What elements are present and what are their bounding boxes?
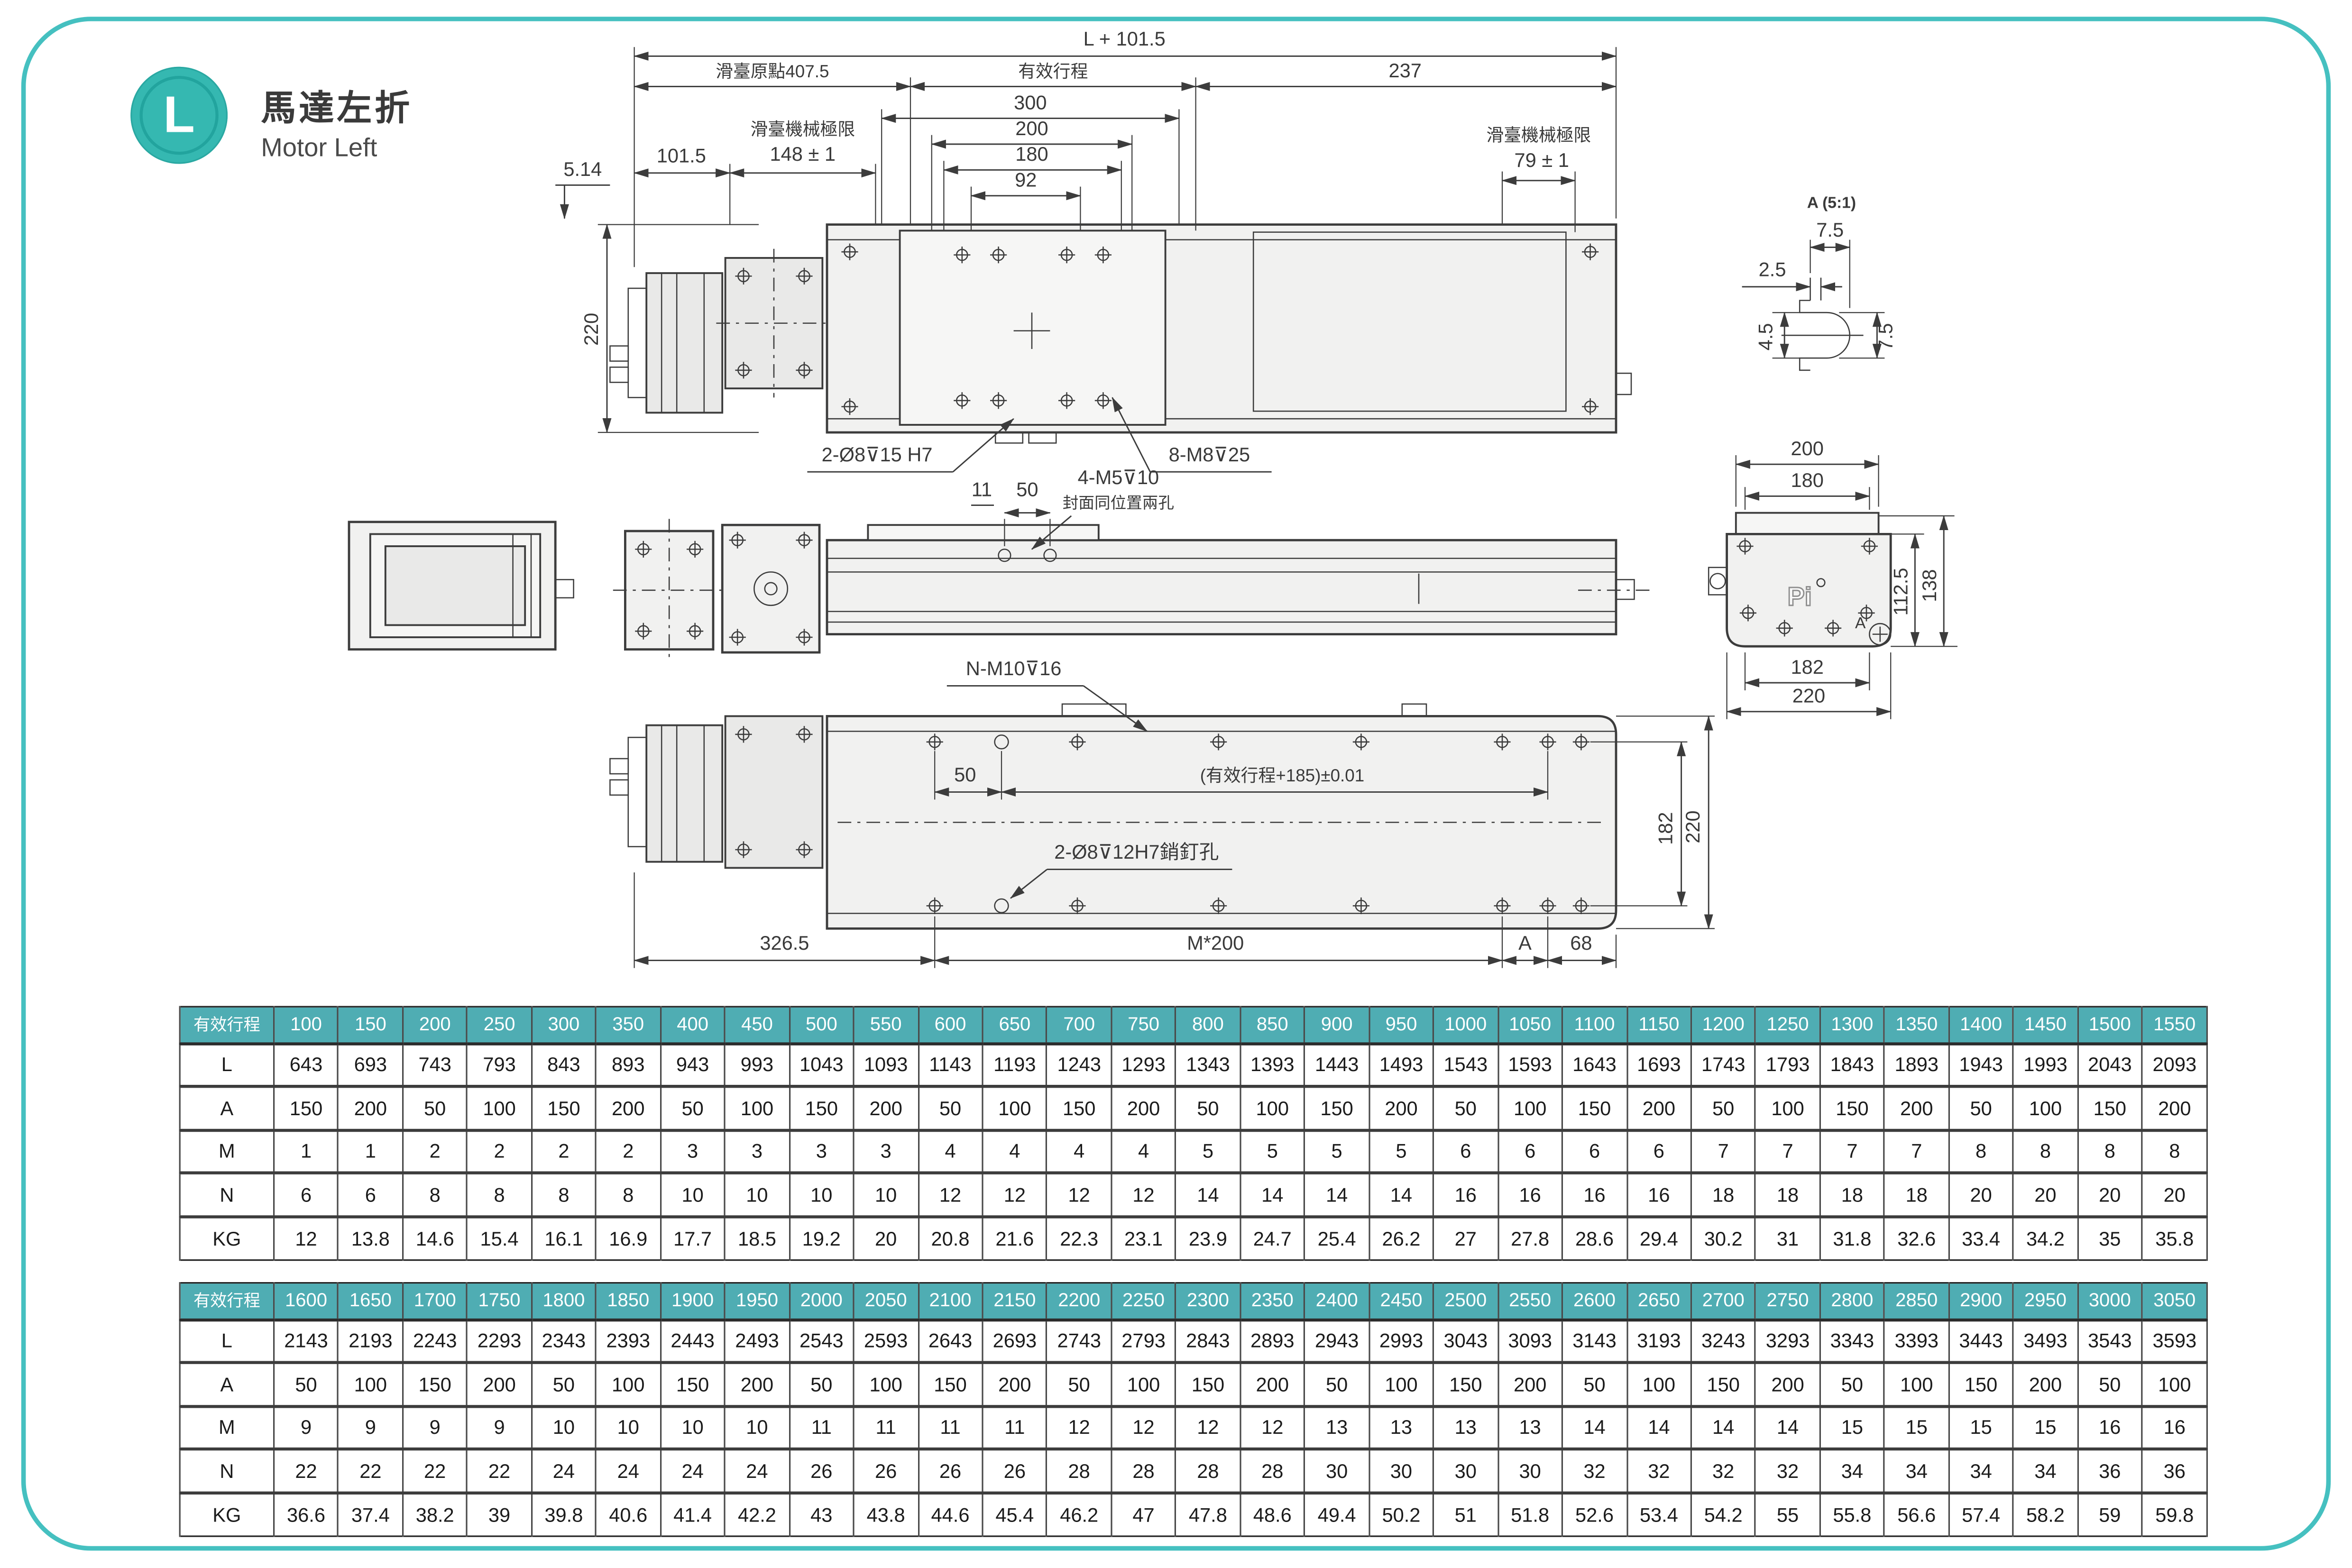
spec-value-cell: 23.1 — [1112, 1217, 1176, 1260]
stroke-header-cell: 2300 — [1176, 1283, 1240, 1320]
spec-value-cell: 20 — [1949, 1174, 2013, 1217]
spec-value-cell: 15 — [1884, 1406, 1949, 1449]
stroke-header-cell: 950 — [1369, 1007, 1433, 1043]
stroke-header-cell: 300 — [532, 1007, 596, 1043]
spec-value-cell: 2143 — [274, 1319, 339, 1363]
spec-value-cell: 2693 — [983, 1319, 1047, 1363]
spec-value-cell: 25.4 — [1305, 1217, 1369, 1260]
callout-m8-holes: 8-M8⊽25 — [1169, 443, 1250, 466]
spec-value-cell: 993 — [725, 1043, 790, 1087]
spec-value-cell: 10 — [789, 1174, 854, 1217]
dim-182-end: 182 — [1791, 656, 1823, 678]
stroke-header-cell: 3050 — [2142, 1283, 2207, 1320]
spec-value-cell: 13.8 — [338, 1217, 403, 1260]
spec-value-cell: 18 — [1820, 1174, 1884, 1217]
spec-value-cell: 1343 — [1176, 1043, 1240, 1087]
spec-value-cell: 13 — [1305, 1406, 1369, 1449]
spec-value-cell: 18 — [1691, 1174, 1755, 1217]
dim-effective-stroke: 有效行程 — [1018, 62, 1088, 81]
spec-value-cell: 8 — [596, 1174, 661, 1217]
spec-value-cell: 100 — [1884, 1363, 1949, 1406]
spec-value-cell: 45.4 — [983, 1493, 1047, 1536]
dim-138: 138 — [1918, 569, 1940, 602]
spec-value-cell: 55.8 — [1820, 1493, 1884, 1536]
spec-value-cell: 14 — [1176, 1174, 1240, 1217]
spec-value-cell: 150 — [918, 1363, 983, 1406]
spec-value-cell: 31 — [1755, 1217, 1820, 1260]
spec-value-cell: 43.8 — [854, 1493, 918, 1536]
spec-value-cell: 55 — [1755, 1493, 1820, 1536]
stroke-header-cell: 2750 — [1755, 1283, 1820, 1320]
spec-value-cell: 1643 — [1562, 1043, 1627, 1087]
spec-value-cell: 150 — [1691, 1363, 1755, 1406]
spec-value-cell: 20 — [2142, 1174, 2207, 1217]
spec-value-cell: 24.7 — [1240, 1217, 1305, 1260]
spec-value-cell: 4 — [918, 1130, 983, 1174]
spec-value-cell: 14.6 — [403, 1217, 467, 1260]
spec-value-cell: 1 — [338, 1130, 403, 1174]
spec-value-cell: 11 — [983, 1406, 1047, 1449]
callout-pin-hole-top: 2-Ø8⊽15 H7 — [822, 443, 933, 466]
spec-value-cell: 30.2 — [1691, 1217, 1755, 1260]
dim-220-bottom: 220 — [1681, 810, 1704, 843]
spec-value-cell: 3593 — [2142, 1319, 2207, 1363]
spec-value-cell: 200 — [1240, 1363, 1305, 1406]
spec-value-cell: 200 — [338, 1087, 403, 1130]
spec-value-cell: 16.1 — [532, 1217, 596, 1260]
spec-value-cell: 24 — [661, 1449, 725, 1493]
spec-value-cell: 24 — [596, 1449, 661, 1493]
spec-value-cell: 7 — [1820, 1130, 1884, 1174]
spec-value-cell: 3 — [725, 1130, 790, 1174]
spec-value-cell: 200 — [2142, 1087, 2207, 1130]
spec-value-cell: 4 — [1112, 1130, 1176, 1174]
spec-value-cell: 1093 — [854, 1043, 918, 1087]
callout-dowel-pin-holes: 2-Ø8⊽12H7銷釘孔 — [1054, 841, 1219, 863]
spec-value-cell: 1243 — [1047, 1043, 1112, 1087]
spec-value-cell: 32 — [1562, 1449, 1627, 1493]
spec-value-cell: 59.8 — [2142, 1493, 2207, 1536]
spec-value-cell: 10 — [661, 1174, 725, 1217]
spec-value-cell: 57.4 — [1949, 1493, 2013, 1536]
spec-value-cell: 743 — [403, 1043, 467, 1087]
spec-value-cell: 6 — [274, 1174, 339, 1217]
dim-326-5: 326.5 — [760, 932, 809, 954]
spec-row-label: KG — [180, 1493, 274, 1536]
spec-value-cell: 4 — [1047, 1130, 1112, 1174]
spec-value-cell: 20.8 — [918, 1217, 983, 1260]
spec-value-cell: 26 — [918, 1449, 983, 1493]
stroke-header-cell: 1850 — [596, 1283, 661, 1320]
stroke-header-cell: 200 — [403, 1007, 467, 1043]
spec-row-kg: KG36.637.438.23939.840.641.442.24343.844… — [180, 1493, 2207, 1536]
spec-value-cell: 22 — [403, 1449, 467, 1493]
dim-50-bottom: 50 — [954, 763, 976, 786]
spec-value-cell: 30 — [1433, 1449, 1498, 1493]
spec-value-cell: 9 — [338, 1406, 403, 1449]
spec-value-cell: 14 — [1369, 1174, 1433, 1217]
spec-value-cell: 200 — [596, 1087, 661, 1130]
spec-value-cell: 13 — [1369, 1406, 1433, 1449]
spec-value-cell: 200 — [2013, 1363, 2078, 1406]
spec-value-cell: 1593 — [1498, 1043, 1562, 1087]
stroke-header-cell: 2700 — [1691, 1283, 1755, 1320]
spec-value-cell: 1743 — [1691, 1043, 1755, 1087]
spec-value-cell: 2743 — [1047, 1319, 1112, 1363]
spec-value-cell: 1893 — [1884, 1043, 1949, 1087]
spec-value-cell: 2993 — [1369, 1319, 1433, 1363]
spec-value-cell: 2493 — [725, 1319, 790, 1363]
stroke-header-label: 有效行程 — [180, 1283, 274, 1320]
spec-value-cell: 14 — [1626, 1406, 1691, 1449]
spec-value-cell: 32 — [1691, 1449, 1755, 1493]
spec-value-cell: 200 — [1884, 1087, 1949, 1130]
spec-value-cell: 50 — [1433, 1087, 1498, 1130]
spec-value-cell: 150 — [1949, 1363, 2013, 1406]
spec-value-cell: 100 — [1369, 1363, 1433, 1406]
spec-value-cell: 13 — [1433, 1406, 1498, 1449]
spec-value-cell: 3193 — [1626, 1319, 1691, 1363]
spec-value-cell: 50.2 — [1369, 1493, 1433, 1536]
stroke-header-cell: 2400 — [1305, 1283, 1369, 1320]
spec-value-cell: 51 — [1433, 1493, 1498, 1536]
spec-value-cell: 2 — [467, 1130, 532, 1174]
dim-237: 237 — [1388, 59, 1421, 82]
spec-value-cell: 1393 — [1240, 1043, 1305, 1087]
spec-value-cell: 2043 — [2077, 1043, 2142, 1087]
spec-value-cell: 150 — [661, 1363, 725, 1406]
stroke-header-cell: 400 — [661, 1007, 725, 1043]
spec-value-cell: 6 — [1626, 1130, 1691, 1174]
spec-value-cell: 14 — [1305, 1174, 1369, 1217]
technical-drawing: L + 101.5 滑臺原點407.5 有效行程 237 300 200 180… — [0, 0, 2352, 1001]
spec-value-cell: 38.2 — [403, 1493, 467, 1536]
spec-row-label: M — [180, 1406, 274, 1449]
spec-row-label: A — [180, 1087, 274, 1130]
spec-value-cell: 32.6 — [1884, 1217, 1949, 1260]
spec-value-cell: 3393 — [1884, 1319, 1949, 1363]
spec-value-cell: 18 — [1884, 1174, 1949, 1217]
stroke-header-cell: 2000 — [789, 1283, 854, 1320]
spec-value-cell: 2643 — [918, 1319, 983, 1363]
spec-value-cell: 6 — [1562, 1130, 1627, 1174]
spec-value-cell: 150 — [789, 1087, 854, 1130]
spec-value-cell: 2243 — [403, 1319, 467, 1363]
bottom-view-linework — [610, 704, 1616, 929]
spec-value-cell: 150 — [532, 1087, 596, 1130]
spec-value-cell: 200 — [1498, 1363, 1562, 1406]
detail-dim-4-5: 4.5 — [1755, 323, 1777, 350]
spec-value-cell: 100 — [2142, 1363, 2207, 1406]
spec-value-cell: 1843 — [1820, 1043, 1884, 1087]
spec-value-cell: 150 — [1562, 1087, 1627, 1130]
spec-value-cell: 693 — [338, 1043, 403, 1087]
spec-value-cell: 10 — [661, 1406, 725, 1449]
stroke-header-cell: 150 — [338, 1007, 403, 1043]
stroke-header-cell: 2050 — [854, 1283, 918, 1320]
stroke-header-cell: 2850 — [1884, 1283, 1949, 1320]
stroke-header-cell: 1150 — [1626, 1007, 1691, 1043]
stroke-header-cell: 2200 — [1047, 1283, 1112, 1320]
spec-value-cell: 5 — [1176, 1130, 1240, 1174]
spec-value-cell: 11 — [854, 1406, 918, 1449]
spec-row-n: N668888101010101212121214141414161616161… — [180, 1174, 2207, 1217]
spec-row-m: M112222333344445555666677778888 — [180, 1130, 2207, 1174]
spec-value-cell: 1043 — [789, 1043, 854, 1087]
dim-68: 68 — [1570, 932, 1592, 954]
spec-value-cell: 100 — [1755, 1087, 1820, 1130]
spec-value-cell: 12 — [983, 1174, 1047, 1217]
spec-value-cell: 11 — [918, 1406, 983, 1449]
stroke-header-cell: 2950 — [2013, 1283, 2078, 1320]
spec-row-m: M999910101010111111111212121213131313141… — [180, 1406, 2207, 1449]
spec-value-cell: 27.8 — [1498, 1217, 1562, 1260]
spec-value-cell: 17.7 — [661, 1217, 725, 1260]
spec-value-cell: 34 — [1820, 1449, 1884, 1493]
spec-value-cell: 28 — [1176, 1449, 1240, 1493]
spec-value-cell: 4 — [983, 1130, 1047, 1174]
spec-value-cell: 1693 — [1626, 1043, 1691, 1087]
spec-value-cell: 3 — [661, 1130, 725, 1174]
spec-value-cell: 2843 — [1176, 1319, 1240, 1363]
spec-value-cell: 44.6 — [918, 1493, 983, 1536]
label-slide-mech-limit-right: 滑臺機械極限 — [1486, 126, 1591, 145]
label-slide-mech-limit-left: 滑臺機械極限 — [750, 119, 855, 139]
spec-value-cell: 50 — [789, 1363, 854, 1406]
spec-value-cell: 22.3 — [1047, 1217, 1112, 1260]
spec-value-cell: 2343 — [532, 1319, 596, 1363]
stroke-header-cell: 2600 — [1562, 1283, 1627, 1320]
stroke-header-cell: 1750 — [467, 1283, 532, 1320]
stroke-header-cell: 550 — [854, 1007, 918, 1043]
stroke-header-cell: 1800 — [532, 1283, 596, 1320]
stroke-header-cell: 250 — [467, 1007, 532, 1043]
end-view-linework: Pi A — [1709, 513, 1891, 647]
stroke-header-cell: 850 — [1240, 1007, 1305, 1043]
spec-value-cell: 50 — [1047, 1363, 1112, 1406]
spec-value-cell: 24 — [725, 1449, 790, 1493]
stroke-header-cell: 3000 — [2077, 1283, 2142, 1320]
stroke-header-cell: 1250 — [1755, 1007, 1820, 1043]
spec-value-cell: 37.4 — [338, 1493, 403, 1536]
spec-row-label: L — [180, 1043, 274, 1087]
spec-value-cell: 943 — [661, 1043, 725, 1087]
spec-value-cell: 50 — [1949, 1087, 2013, 1130]
spec-value-cell: 100 — [596, 1363, 661, 1406]
spec-value-cell: 42.2 — [725, 1493, 790, 1536]
badge-letter: L — [163, 90, 195, 141]
spec-value-cell: 8 — [467, 1174, 532, 1217]
spec-value-cell: 12 — [1047, 1406, 1112, 1449]
spec-value-cell: 14 — [1240, 1174, 1305, 1217]
spec-value-cell: 100 — [1240, 1087, 1305, 1130]
spec-value-cell: 150 — [1433, 1363, 1498, 1406]
spec-value-cell: 19.2 — [789, 1217, 854, 1260]
spec-value-cell: 3 — [789, 1130, 854, 1174]
spec-value-cell: 1293 — [1112, 1043, 1176, 1087]
spec-value-cell: 15 — [1820, 1406, 1884, 1449]
spec-value-cell: 50 — [274, 1363, 339, 1406]
spec-value-cell: 1543 — [1433, 1043, 1498, 1087]
detail-dim-7-5-top: 7.5 — [1816, 219, 1844, 241]
spec-value-cell: 28 — [1047, 1449, 1112, 1493]
spec-value-cell: 30 — [1305, 1449, 1369, 1493]
spec-value-cell: 11 — [789, 1406, 854, 1449]
spec-value-cell: 43 — [789, 1493, 854, 1536]
spec-value-cell: 10 — [725, 1406, 790, 1449]
spec-value-cell: 28 — [1112, 1449, 1176, 1493]
stroke-header-cell: 2900 — [1949, 1283, 2013, 1320]
spec-value-cell: 2593 — [854, 1319, 918, 1363]
spec-value-cell: 27 — [1433, 1217, 1498, 1260]
spec-value-cell: 2 — [403, 1130, 467, 1174]
spec-value-cell: 3443 — [1949, 1319, 2013, 1363]
stroke-header-cell: 750 — [1112, 1007, 1176, 1043]
spec-value-cell: 5 — [1369, 1130, 1433, 1174]
stroke-header-cell: 1400 — [1949, 1007, 2013, 1043]
detail-a-callout-ref: A — [1855, 614, 1866, 632]
spec-value-cell: 1 — [274, 1130, 339, 1174]
spec-value-cell: 26 — [854, 1449, 918, 1493]
spec-value-cell: 10 — [596, 1406, 661, 1449]
spec-value-cell: 2793 — [1112, 1319, 1176, 1363]
pi-brand-logo: Pi — [1788, 582, 1812, 611]
spec-row-label: A — [180, 1363, 274, 1406]
spec-value-cell: 3 — [854, 1130, 918, 1174]
spec-value-cell: 34.2 — [2013, 1217, 2078, 1260]
spec-value-cell: 12 — [274, 1217, 339, 1260]
spec-value-cell: 21.6 — [983, 1217, 1047, 1260]
spec-value-cell: 50 — [1562, 1363, 1627, 1406]
detail-dim-7-5-right: 7.5 — [1874, 323, 1896, 350]
spec-value-cell: 100 — [467, 1087, 532, 1130]
spec-value-cell: 56.6 — [1884, 1493, 1949, 1536]
spec-value-cell: 100 — [1626, 1363, 1691, 1406]
spec-value-cell: 35.8 — [2142, 1217, 2207, 1260]
stroke-header-cell: 2650 — [1626, 1283, 1691, 1320]
spec-value-cell: 33.4 — [1949, 1217, 2013, 1260]
dim-stroke-tolerance: (有效行程+185)±0.01 — [1200, 766, 1364, 785]
spec-value-cell: 100 — [1498, 1087, 1562, 1130]
spec-row-label: KG — [180, 1217, 274, 1260]
spec-value-cell: 100 — [1112, 1363, 1176, 1406]
stroke-header-cell: 600 — [918, 1007, 983, 1043]
spec-value-cell: 10 — [532, 1406, 596, 1449]
spec-value-cell: 50 — [918, 1087, 983, 1130]
spec-value-cell: 31.8 — [1820, 1217, 1884, 1260]
spec-value-cell: 6 — [1433, 1130, 1498, 1174]
spec-value-cell: 36.6 — [274, 1493, 339, 1536]
dim-220-end: 220 — [1792, 685, 1825, 707]
spec-value-cell: 16 — [1626, 1174, 1691, 1217]
spec-row-label: M — [180, 1130, 274, 1174]
spec-value-cell: 32 — [1755, 1449, 1820, 1493]
spec-value-cell: 48.6 — [1240, 1493, 1305, 1536]
spec-table-strokes-1600-3050: 有效行程160016501700175018001850190019502000… — [179, 1282, 2208, 1537]
dim-92: 92 — [1015, 169, 1037, 191]
dim-220-top: 220 — [580, 313, 602, 346]
stroke-header-cell: 100 — [274, 1007, 339, 1043]
stroke-header-cell: 1350 — [1884, 1007, 1949, 1043]
stroke-header-cell: 1700 — [403, 1283, 467, 1320]
stroke-header-cell: 1900 — [661, 1283, 725, 1320]
spec-value-cell: 34 — [1949, 1449, 2013, 1493]
spec-value-cell: 2943 — [1305, 1319, 1369, 1363]
stroke-header-cell: 1200 — [1691, 1007, 1755, 1043]
dim-79: 79 ± 1 — [1515, 149, 1569, 171]
spec-value-cell: 3543 — [2077, 1319, 2142, 1363]
spec-value-cell: 50 — [403, 1087, 467, 1130]
dim-5-14: 5.14 — [563, 158, 602, 180]
dim-148: 148 ± 1 — [770, 143, 836, 165]
spec-value-cell: 26 — [983, 1449, 1047, 1493]
spec-value-cell: 46.2 — [1047, 1493, 1112, 1536]
spec-table-strokes-100-1550: 有效行程100150200250300350400450500550600650… — [179, 1006, 2208, 1261]
spec-value-cell: 22 — [274, 1449, 339, 1493]
spec-value-cell: 793 — [467, 1043, 532, 1087]
stroke-header-cell: 2150 — [983, 1283, 1047, 1320]
stroke-header-cell: 350 — [596, 1007, 661, 1043]
spec-value-cell: 12 — [1240, 1406, 1305, 1449]
stroke-header-label: 有效行程 — [180, 1007, 274, 1043]
spec-value-cell: 16 — [1498, 1174, 1562, 1217]
spec-value-cell: 150 — [1047, 1087, 1112, 1130]
spec-value-cell: 30 — [1369, 1449, 1433, 1493]
stroke-header-cell: 1650 — [338, 1283, 403, 1320]
stroke-header-cell: 1000 — [1433, 1007, 1498, 1043]
stroke-header-cell: 1550 — [2142, 1007, 2207, 1043]
spec-value-cell: 2093 — [2142, 1043, 2207, 1087]
spec-value-cell: 100 — [983, 1087, 1047, 1130]
spec-value-cell: 34 — [2013, 1449, 2078, 1493]
top-view-linework — [610, 225, 1631, 443]
spec-value-cell: 41.4 — [661, 1493, 725, 1536]
spec-value-cell: 30 — [1498, 1449, 1562, 1493]
spec-value-cell: 16 — [2142, 1406, 2207, 1449]
stroke-header-cell: 1300 — [1820, 1007, 1884, 1043]
spec-value-cell: 1193 — [983, 1043, 1047, 1087]
spec-value-cell: 3143 — [1562, 1319, 1627, 1363]
spec-value-cell: 8 — [532, 1174, 596, 1217]
spec-row-a: A150200501001502005010015020050100150200… — [180, 1087, 2207, 1130]
spec-value-cell: 14 — [1755, 1406, 1820, 1449]
spec-value-cell: 7 — [1755, 1130, 1820, 1174]
spec-value-cell: 12 — [1112, 1406, 1176, 1449]
spec-value-cell: 51.8 — [1498, 1493, 1562, 1536]
spec-value-cell: 200 — [467, 1363, 532, 1406]
spec-value-cell: 9 — [467, 1406, 532, 1449]
spec-value-cell: 40.6 — [596, 1493, 661, 1536]
spec-value-cell: 47 — [1112, 1493, 1176, 1536]
dim-200-end: 200 — [1791, 437, 1823, 459]
spec-value-cell: 150 — [1305, 1087, 1369, 1130]
spec-value-cell: 9 — [274, 1406, 339, 1449]
spec-value-cell: 52.6 — [1562, 1493, 1627, 1536]
spec-value-cell: 3343 — [1820, 1319, 1884, 1363]
spec-value-cell: 16 — [1562, 1174, 1627, 1217]
spec-value-cell: 49.4 — [1305, 1493, 1369, 1536]
stroke-header-cell: 500 — [789, 1007, 854, 1043]
spec-value-cell: 12 — [1176, 1406, 1240, 1449]
spec-value-cell: 1143 — [918, 1043, 983, 1087]
detail-a-view: A (5:1) 7.5 2.5 4.5 7.5 — [1742, 194, 1897, 370]
stroke-header-cell: 1100 — [1562, 1007, 1627, 1043]
dim-a-segment: A — [1518, 932, 1532, 954]
spec-value-cell: 2 — [596, 1130, 661, 1174]
detail-a-title: A (5:1) — [1807, 194, 1856, 211]
spec-value-cell: 13 — [1498, 1406, 1562, 1449]
spec-value-cell: 50 — [1820, 1363, 1884, 1406]
